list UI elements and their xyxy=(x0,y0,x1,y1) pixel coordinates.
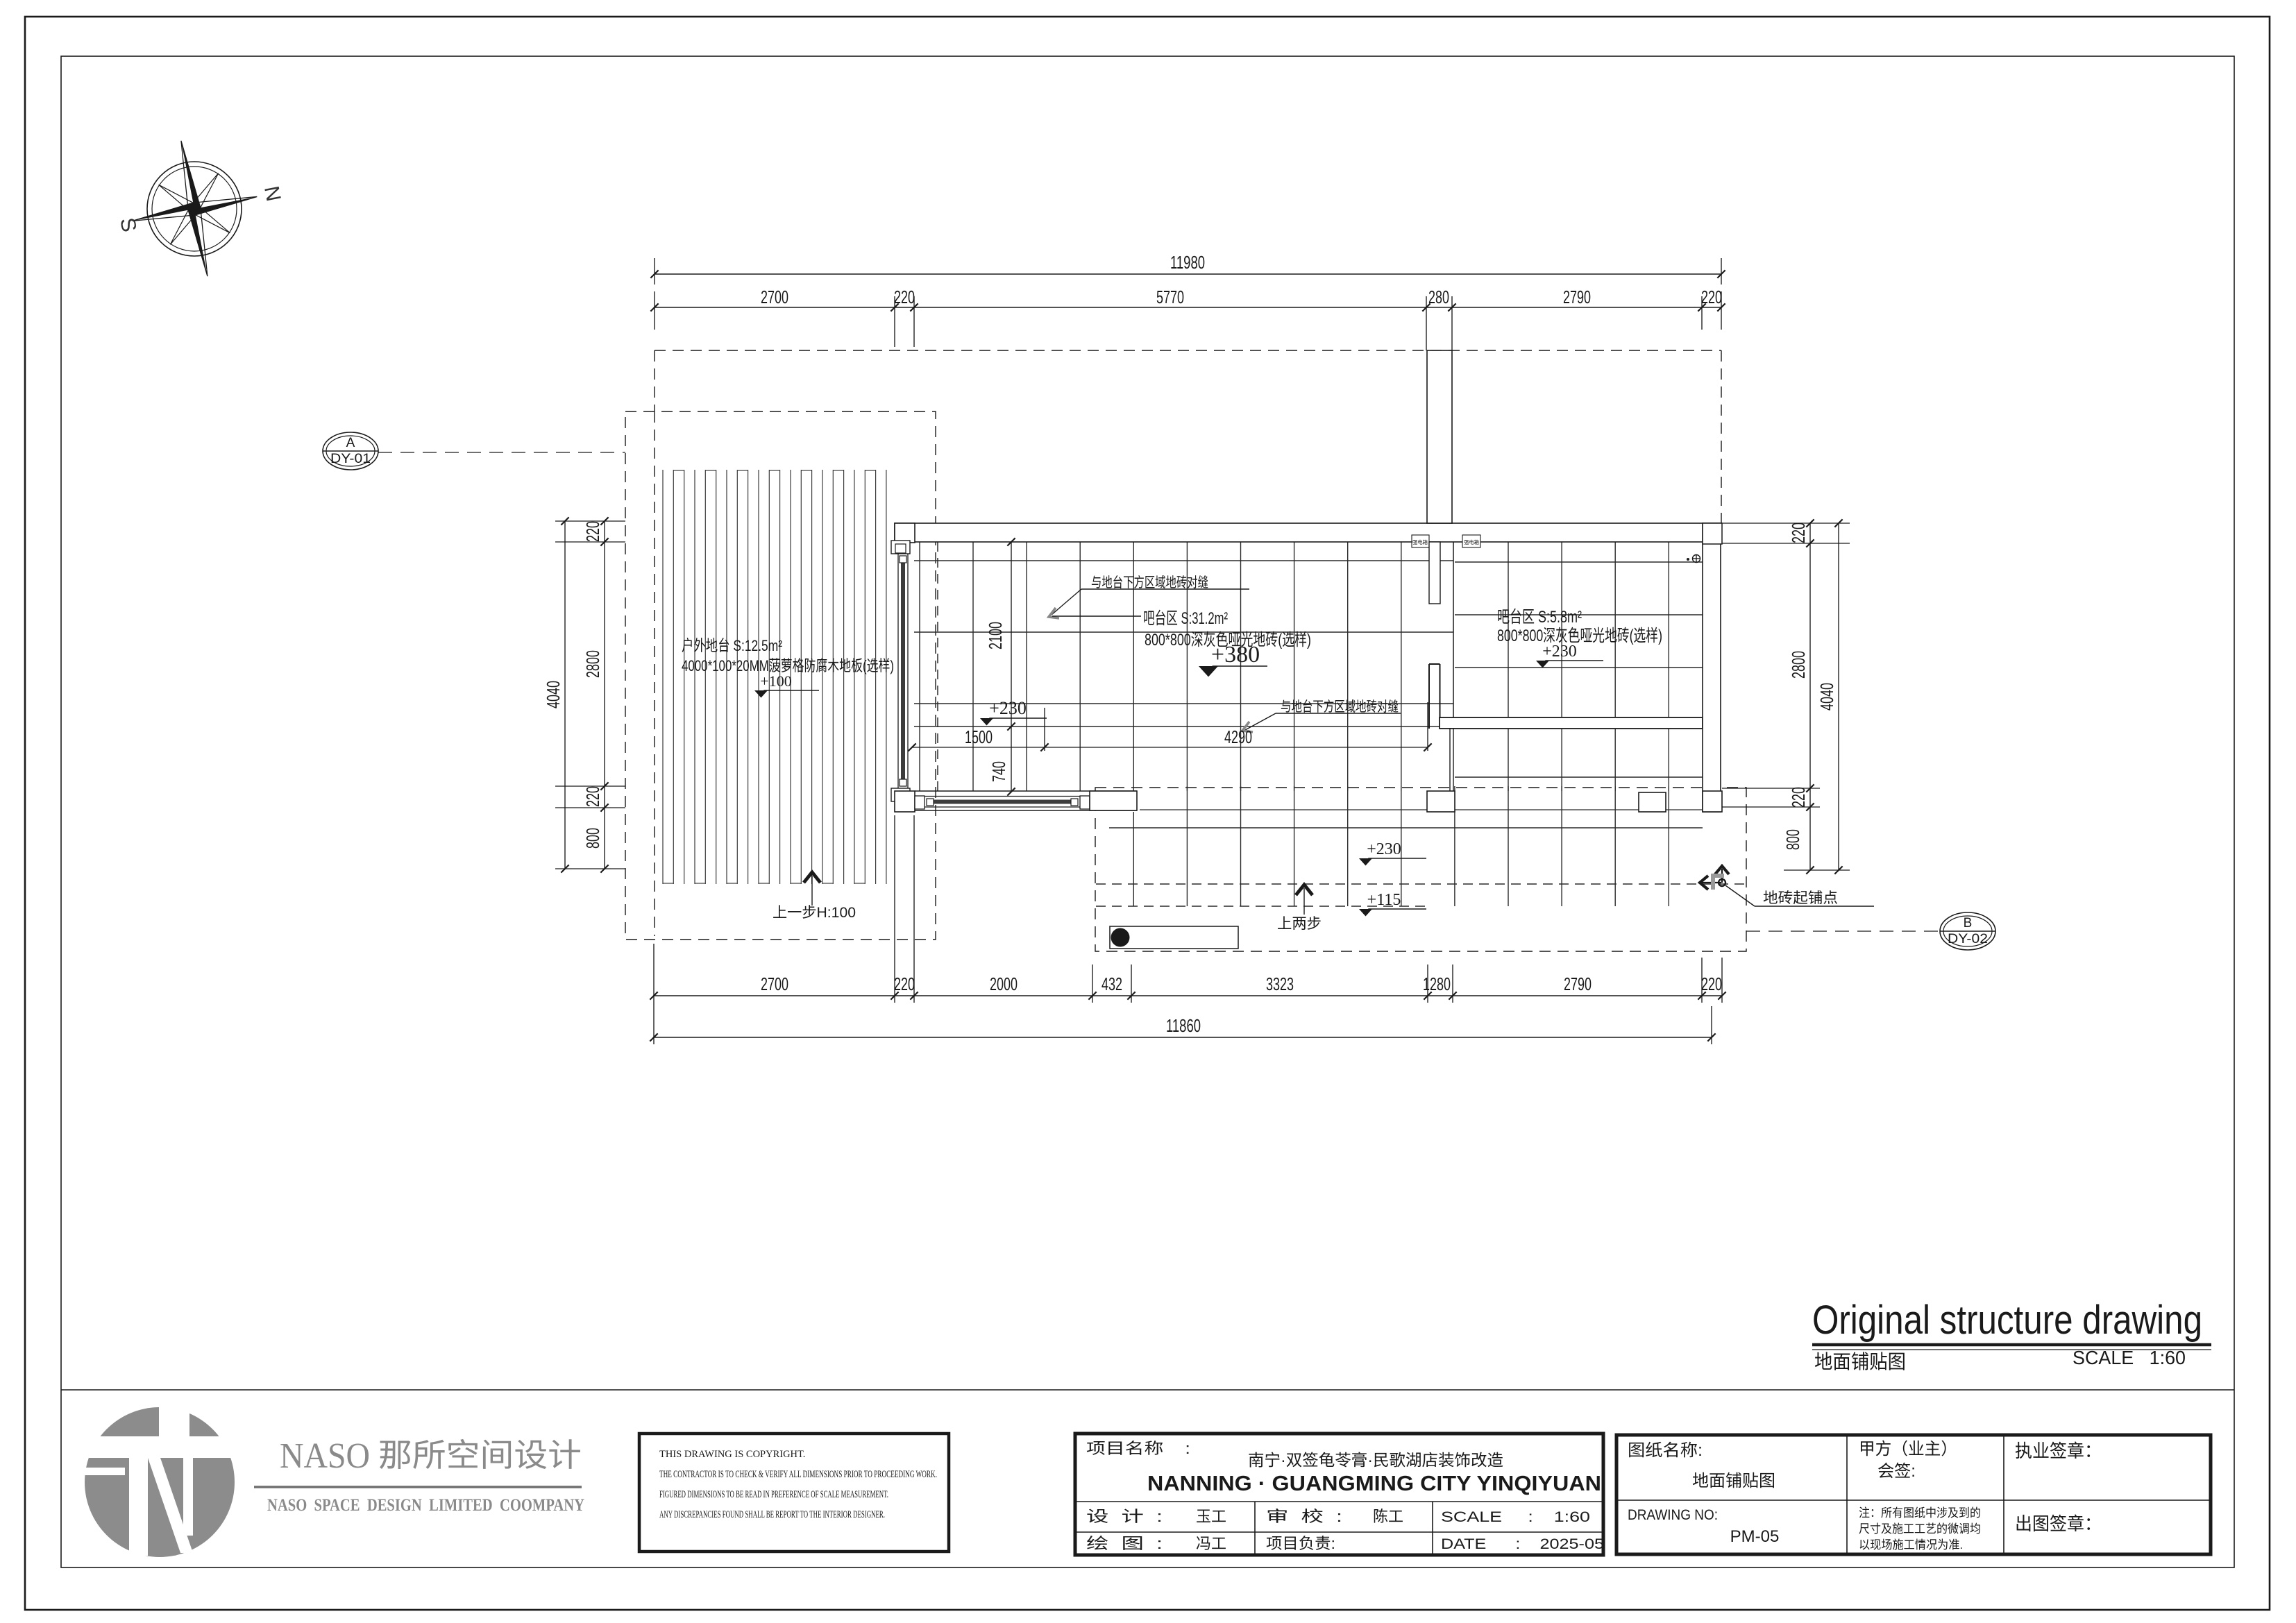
svg-text:2700: 2700 xyxy=(761,287,788,307)
svg-text:A: A xyxy=(346,436,355,450)
svg-text:220: 220 xyxy=(582,521,603,542)
svg-text:5770: 5770 xyxy=(1156,287,1184,307)
svg-text:强电箱: 强电箱 xyxy=(1464,538,1479,545)
svg-text:吧台区 S:31.2m²: 吧台区 S:31.2m² xyxy=(1143,609,1228,628)
svg-text:3323: 3323 xyxy=(1266,974,1294,994)
svg-text:2100: 2100 xyxy=(985,622,1006,649)
svg-text:地面铺贴图: 地面铺贴图 xyxy=(1692,1472,1775,1490)
svg-text:1280: 1280 xyxy=(1423,974,1451,994)
svg-text:THIS DRAWING IS COPYRIGHT.: THIS DRAWING IS COPYRIGHT. xyxy=(659,1449,805,1460)
svg-text:尺寸及施工工艺的微调均: 尺寸及施工工艺的微调均 xyxy=(1859,1522,1981,1536)
svg-text:2000: 2000 xyxy=(990,974,1018,994)
svg-text:图纸名称:: 图纸名称: xyxy=(1628,1441,1703,1460)
svg-text:2700: 2700 xyxy=(761,974,788,994)
svg-text:PM-05: PM-05 xyxy=(1730,1527,1780,1546)
svg-text:4040: 4040 xyxy=(543,681,564,708)
svg-text:THE CONTRACTOR IS TO CHECK & V: THE CONTRACTOR IS TO CHECK & VERIFY ALL … xyxy=(659,1469,937,1480)
svg-text:DY-02: DY-02 xyxy=(1948,932,1988,946)
svg-text:220: 220 xyxy=(1701,974,1722,994)
svg-text:上一步H:100: 上一步H:100 xyxy=(773,905,856,921)
svg-text:项目负责:: 项目负责: xyxy=(1266,1535,1335,1552)
svg-text:220: 220 xyxy=(894,287,915,307)
svg-text:+115: +115 xyxy=(1367,891,1401,909)
svg-text:上两步: 上两步 xyxy=(1277,916,1322,932)
svg-text:280: 280 xyxy=(1428,287,1449,307)
svg-text:冯工: 冯工 xyxy=(1196,1535,1226,1552)
svg-text:4040: 4040 xyxy=(1816,683,1837,711)
svg-text:DATE : 2025-05: DATE : 2025-05 xyxy=(1441,1536,1604,1552)
svg-text:800: 800 xyxy=(582,828,603,849)
svg-text:出图签章：: 出图签章： xyxy=(2015,1513,2102,1534)
svg-text:强电箱: 强电箱 xyxy=(1412,538,1428,545)
svg-text:800: 800 xyxy=(1782,829,1803,850)
svg-text:那所空间设计: 那所空间设计 xyxy=(378,1437,582,1473)
svg-text:B: B xyxy=(1964,916,1973,931)
svg-text:甲方（业主）: 甲方（业主） xyxy=(1859,1440,1957,1459)
svg-text:玉工: 玉工 xyxy=(1196,1508,1226,1525)
svg-text:与地台下方区域地砖对缝: 与地台下方区域地砖对缝 xyxy=(1091,575,1208,590)
svg-text:南宁·双签龟苓膏·民歌湖店装饰改造: 南宁·双签龟苓膏·民歌湖店装饰改造 xyxy=(1248,1451,1503,1469)
svg-text:注：所有图纸中涉及到的: 注：所有图纸中涉及到的 xyxy=(1859,1506,1981,1520)
svg-text:执业签章：: 执业签章： xyxy=(2015,1441,2102,1461)
svg-text:DRAWING NO:: DRAWING NO: xyxy=(1628,1507,1718,1523)
svg-text:NASO SPACE DESIGN LIMITED: NASO SPACE DESIGN LIMITED COOMPANY xyxy=(267,1496,584,1515)
svg-text:SCALE : 1:60: SCALE : 1:60 xyxy=(1441,1509,1590,1525)
svg-text:地砖起铺点: 地砖起铺点 xyxy=(1763,890,1838,906)
svg-text:11860: 11860 xyxy=(1166,1015,1201,1036)
svg-text:1500: 1500 xyxy=(965,726,993,747)
svg-text:会签:: 会签: xyxy=(1877,1462,1916,1481)
svg-text:ANY DISCREPANCIES FOUND SHALL: ANY DISCREPANCIES FOUND SHALL BE REPORT … xyxy=(659,1509,885,1520)
svg-text:220: 220 xyxy=(1788,787,1809,808)
svg-text:NASO: NASO xyxy=(280,1436,370,1476)
svg-text:2800: 2800 xyxy=(582,650,603,678)
svg-text:审 校 :: 审 校 : xyxy=(1266,1508,1342,1525)
svg-text:FIGURED DIMENSIONS TO BE READ: FIGURED DIMENSIONS TO BE READ IN PREFERE… xyxy=(659,1489,888,1500)
svg-text:与地台下方区域地砖对缝: 与地台下方区域地砖对缝 xyxy=(1281,699,1399,715)
svg-text:432: 432 xyxy=(1101,974,1122,994)
svg-text:吧台区 S:5.8m²: 吧台区 S:5.8m² xyxy=(1497,608,1582,627)
svg-text:Original structure drawing: Original structure drawing xyxy=(1812,1298,2202,1343)
svg-text:220: 220 xyxy=(1788,522,1809,543)
svg-text:2800: 2800 xyxy=(1788,651,1809,679)
svg-text:220: 220 xyxy=(1701,287,1722,307)
svg-text:NANNING · GUANGMING CITY YINQI: NANNING · GUANGMING CITY YINQIYUAN xyxy=(1147,1471,1601,1495)
svg-text:+100: +100 xyxy=(760,672,791,690)
svg-text:2790: 2790 xyxy=(1563,287,1591,307)
svg-text:DY-01: DY-01 xyxy=(330,452,371,466)
svg-text:+380: +380 xyxy=(1211,642,1260,668)
svg-text:户外地台 S:12.5m²: 户外地台 S:12.5m² xyxy=(682,637,782,654)
svg-text:设 计 :: 设 计 : xyxy=(1086,1508,1163,1525)
svg-text:陈工: 陈工 xyxy=(1373,1508,1403,1525)
svg-text:绘 图 :: 绘 图 : xyxy=(1086,1535,1163,1552)
svg-text:SCALE 1:60: SCALE 1:60 xyxy=(2073,1347,2186,1368)
svg-text:220: 220 xyxy=(582,786,603,807)
svg-text:11980: 11980 xyxy=(1170,252,1205,273)
svg-text:800*800深灰色哑光地砖(选样): 800*800深灰色哑光地砖(选样) xyxy=(1497,627,1662,645)
svg-text:+230: +230 xyxy=(989,698,1027,718)
svg-text:+230: +230 xyxy=(1367,840,1401,858)
svg-text:+230: +230 xyxy=(1542,643,1577,661)
svg-text:地面铺贴图: 地面铺贴图 xyxy=(1814,1351,1906,1373)
svg-text:4290: 4290 xyxy=(1224,726,1252,747)
svg-text:项目名称 :: 项目名称 : xyxy=(1086,1440,1190,1457)
svg-text:220: 220 xyxy=(894,974,915,994)
svg-text:以现场施工情况为准.: 以现场施工情况为准. xyxy=(1859,1538,1963,1552)
svg-text:2790: 2790 xyxy=(1564,974,1592,994)
svg-text:740: 740 xyxy=(988,761,1009,782)
